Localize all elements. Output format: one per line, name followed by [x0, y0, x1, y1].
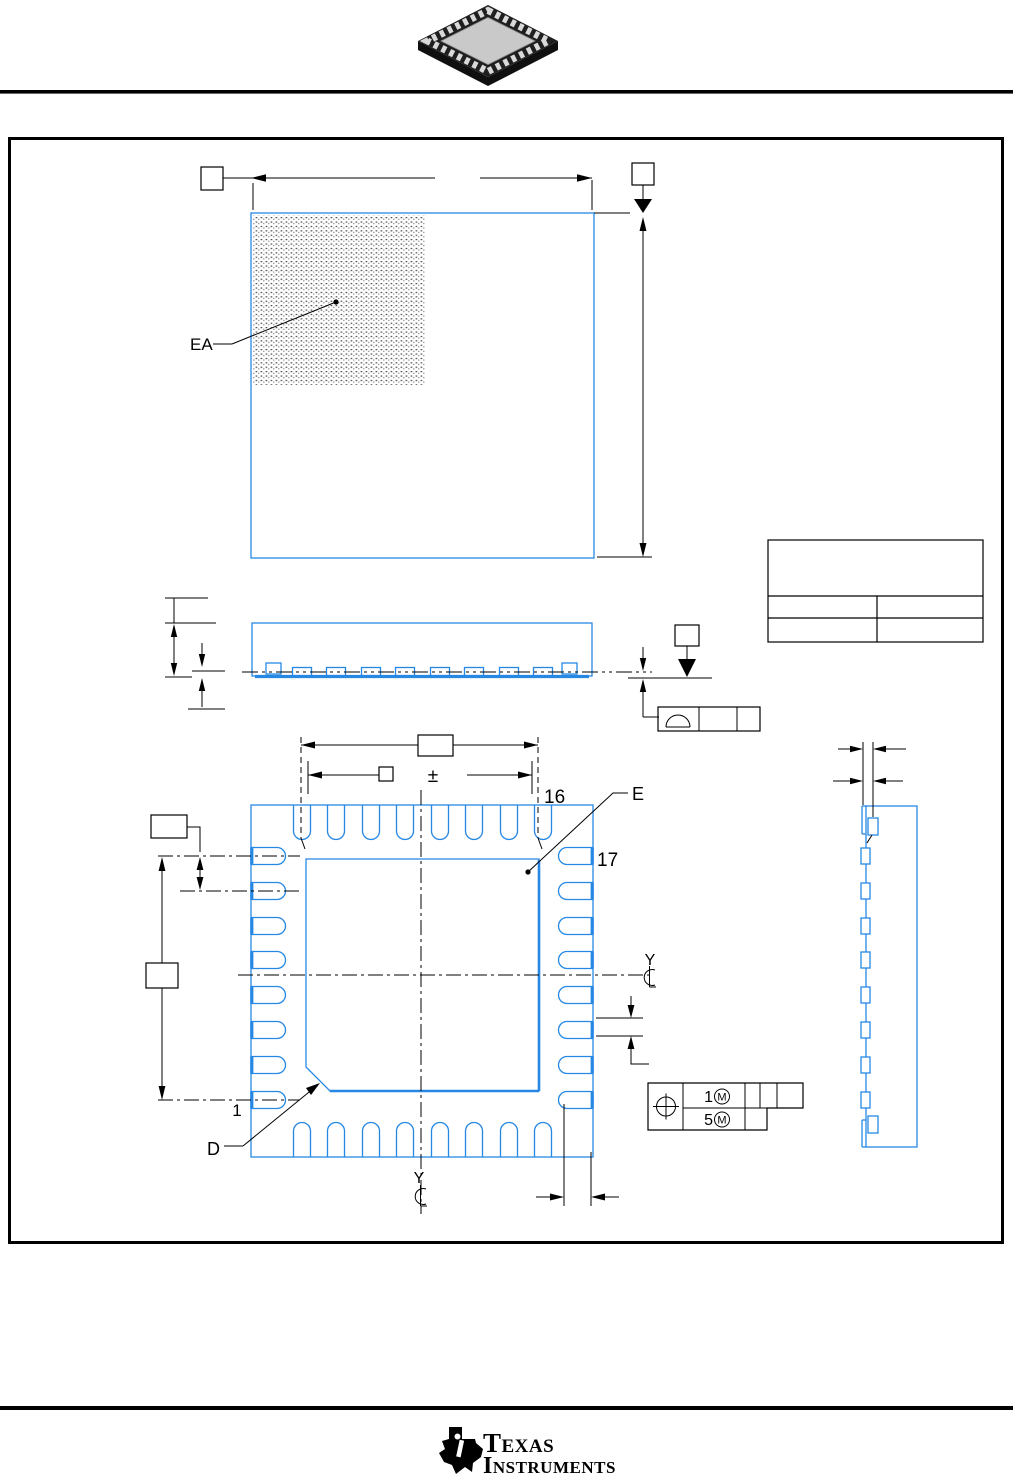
- thermal-pad-stipple: [253, 215, 425, 385]
- top-view: EA: [190, 163, 654, 558]
- arrowhead: [640, 543, 647, 557]
- datum-triangle: [678, 659, 696, 677]
- gdt-row1-value: 1: [704, 1089, 713, 1106]
- ti-logo: Texas Instruments: [439, 1427, 616, 1475]
- leader-dot: [525, 869, 530, 874]
- lead-dim-label: E: [632, 784, 644, 804]
- package-outline-bottom: [251, 805, 593, 1157]
- mechanical-drawing-svg: EA: [0, 0, 1013, 1475]
- top-rule: [0, 90, 1013, 94]
- bottom-edge-pins: [294, 1123, 552, 1158]
- left-edge-pins: [251, 848, 286, 1109]
- datum-y-right-label: Y: [645, 952, 656, 969]
- datum-callout-box: [675, 625, 699, 646]
- mmc-letter: M: [717, 1092, 726, 1104]
- datum-triangle: [634, 199, 652, 213]
- texas-state-icon: [439, 1427, 483, 1474]
- gdt-row2-value: 5: [704, 1112, 713, 1129]
- leader-dot: [333, 299, 338, 304]
- gdt-feature-control-frame: 1 M 5 M: [648, 1083, 803, 1130]
- pin16-label: 16: [544, 787, 565, 808]
- dimension-callout-box: [151, 815, 187, 838]
- mmc-letter: M: [717, 1115, 726, 1127]
- dimension-callout-box: [146, 963, 178, 988]
- drawing-border: [10, 139, 1003, 1243]
- dimension-table: [768, 540, 983, 642]
- bottom-view: ± 16 17 1: [146, 735, 656, 1214]
- arrowhead: [251, 174, 266, 182]
- top-edge-pins: [294, 805, 552, 840]
- seating-plane-symbol: [658, 707, 760, 731]
- arrowhead: [577, 174, 592, 182]
- datasheet-page: EA: [0, 0, 1013, 1475]
- centerline-symbol-icon: [644, 966, 656, 987]
- datum-callout-box: [201, 167, 223, 190]
- dimension-callout-box: [379, 767, 393, 781]
- datum-y-bottom-label: Y: [414, 1170, 425, 1187]
- bottom-rule: [0, 1406, 1013, 1410]
- package-outline-right: [866, 806, 917, 1147]
- right-edge-pins: [559, 848, 594, 1109]
- pin1-label: 1: [232, 1101, 241, 1120]
- pin17-label: 17: [597, 850, 618, 871]
- pad-dim-label: D: [207, 1139, 220, 1159]
- right-side-view: [833, 742, 917, 1147]
- qfn-chip-photo: [418, 5, 558, 86]
- thermal-pad-label: EA: [190, 335, 213, 354]
- datum-callout-box: [632, 163, 654, 185]
- side-view: [165, 598, 760, 731]
- dimension-callout-box: [418, 735, 453, 756]
- logo-word2: Instruments: [483, 1453, 616, 1475]
- tolerance-sign: ±: [428, 766, 438, 787]
- position-tolerance-icon: [653, 1094, 679, 1120]
